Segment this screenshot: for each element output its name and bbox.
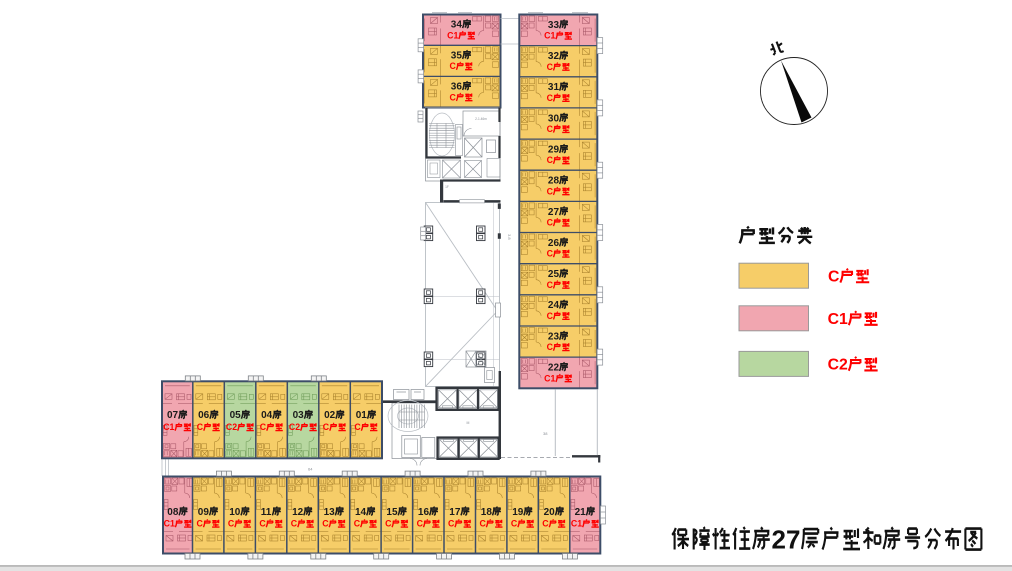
svg-text:64: 64 xyxy=(308,467,313,472)
svg-text:30: 30 xyxy=(548,113,560,124)
svg-text:C2: C2 xyxy=(289,422,300,432)
svg-text:C1: C1 xyxy=(447,30,458,40)
svg-text:C: C xyxy=(547,62,554,72)
svg-text:C: C xyxy=(323,422,330,432)
svg-text:13: 13 xyxy=(324,507,336,518)
svg-text:C2: C2 xyxy=(226,422,237,432)
svg-text:28: 28 xyxy=(548,176,560,187)
svg-text:04: 04 xyxy=(261,410,273,421)
svg-text:19: 19 xyxy=(512,507,524,518)
svg-text:26: 26 xyxy=(548,238,560,249)
svg-text:C: C xyxy=(448,519,455,529)
svg-text:C: C xyxy=(547,342,554,352)
svg-text:32: 32 xyxy=(548,51,560,62)
svg-text:C: C xyxy=(259,519,266,529)
svg-text:22: 22 xyxy=(548,363,560,374)
svg-text:36: 36 xyxy=(451,82,463,93)
svg-text:C: C xyxy=(417,519,424,529)
svg-text:24: 24 xyxy=(548,300,560,311)
svg-text:2-1.46m: 2-1.46m xyxy=(475,117,487,121)
svg-text:C: C xyxy=(354,519,361,529)
svg-text:29: 29 xyxy=(548,145,560,156)
svg-text:C2: C2 xyxy=(828,357,848,374)
svg-text:C1: C1 xyxy=(571,519,582,529)
svg-text:12: 12 xyxy=(292,507,304,518)
svg-text:06: 06 xyxy=(198,410,210,421)
svg-text:C1: C1 xyxy=(544,31,555,41)
svg-text:09: 09 xyxy=(198,507,210,518)
svg-text:35: 35 xyxy=(451,50,463,61)
svg-text:C1: C1 xyxy=(164,519,175,529)
svg-text:C: C xyxy=(450,61,457,71)
svg-text:25: 25 xyxy=(548,269,560,280)
svg-text:C: C xyxy=(547,218,554,228)
svg-text:34: 34 xyxy=(451,20,463,31)
svg-text:C: C xyxy=(828,269,839,286)
svg-text:C: C xyxy=(322,519,329,529)
svg-text:02: 02 xyxy=(324,410,336,421)
svg-text:C: C xyxy=(291,519,298,529)
svg-text:07: 07 xyxy=(167,410,179,421)
svg-text:08: 08 xyxy=(167,507,179,518)
svg-text:C: C xyxy=(197,422,204,432)
svg-text:C: C xyxy=(450,92,457,102)
svg-text:C1: C1 xyxy=(163,422,174,432)
svg-text:C: C xyxy=(480,519,487,529)
svg-text:18: 18 xyxy=(481,507,493,518)
svg-text:38: 38 xyxy=(543,431,548,436)
svg-text:01: 01 xyxy=(356,410,368,421)
svg-text:1F: 1F xyxy=(445,185,449,189)
svg-text:C: C xyxy=(547,249,554,259)
svg-text:C: C xyxy=(547,124,554,134)
svg-text:C: C xyxy=(260,422,267,432)
svg-text:C: C xyxy=(547,155,554,165)
svg-text:14: 14 xyxy=(355,507,367,518)
svg-text:C: C xyxy=(547,311,554,321)
svg-text:27: 27 xyxy=(772,524,801,554)
svg-text:23: 23 xyxy=(548,331,560,342)
svg-text:C: C xyxy=(228,519,235,529)
svg-text:05: 05 xyxy=(230,410,242,421)
svg-text:M: M xyxy=(467,421,470,425)
svg-text:3.8: 3.8 xyxy=(507,234,512,240)
svg-text:C: C xyxy=(547,280,554,290)
svg-text:C: C xyxy=(547,186,554,196)
svg-text:C: C xyxy=(197,519,204,529)
svg-text:C: C xyxy=(547,93,554,103)
svg-text:C: C xyxy=(385,519,392,529)
svg-text:20: 20 xyxy=(544,507,556,518)
svg-text:33: 33 xyxy=(548,20,560,31)
svg-text:C1: C1 xyxy=(544,373,555,383)
svg-text:17: 17 xyxy=(449,507,461,518)
svg-text:C: C xyxy=(354,422,361,432)
svg-text:10: 10 xyxy=(229,507,241,518)
svg-text:C1: C1 xyxy=(828,311,848,328)
svg-text:27: 27 xyxy=(548,207,560,218)
svg-text:15: 15 xyxy=(386,507,398,518)
svg-text:21: 21 xyxy=(575,507,587,518)
svg-text:C: C xyxy=(511,519,518,529)
svg-text:C: C xyxy=(542,519,549,529)
svg-text:11: 11 xyxy=(261,507,272,518)
svg-text:03: 03 xyxy=(293,410,305,421)
svg-text:16: 16 xyxy=(418,507,430,518)
svg-text:31: 31 xyxy=(548,82,560,93)
